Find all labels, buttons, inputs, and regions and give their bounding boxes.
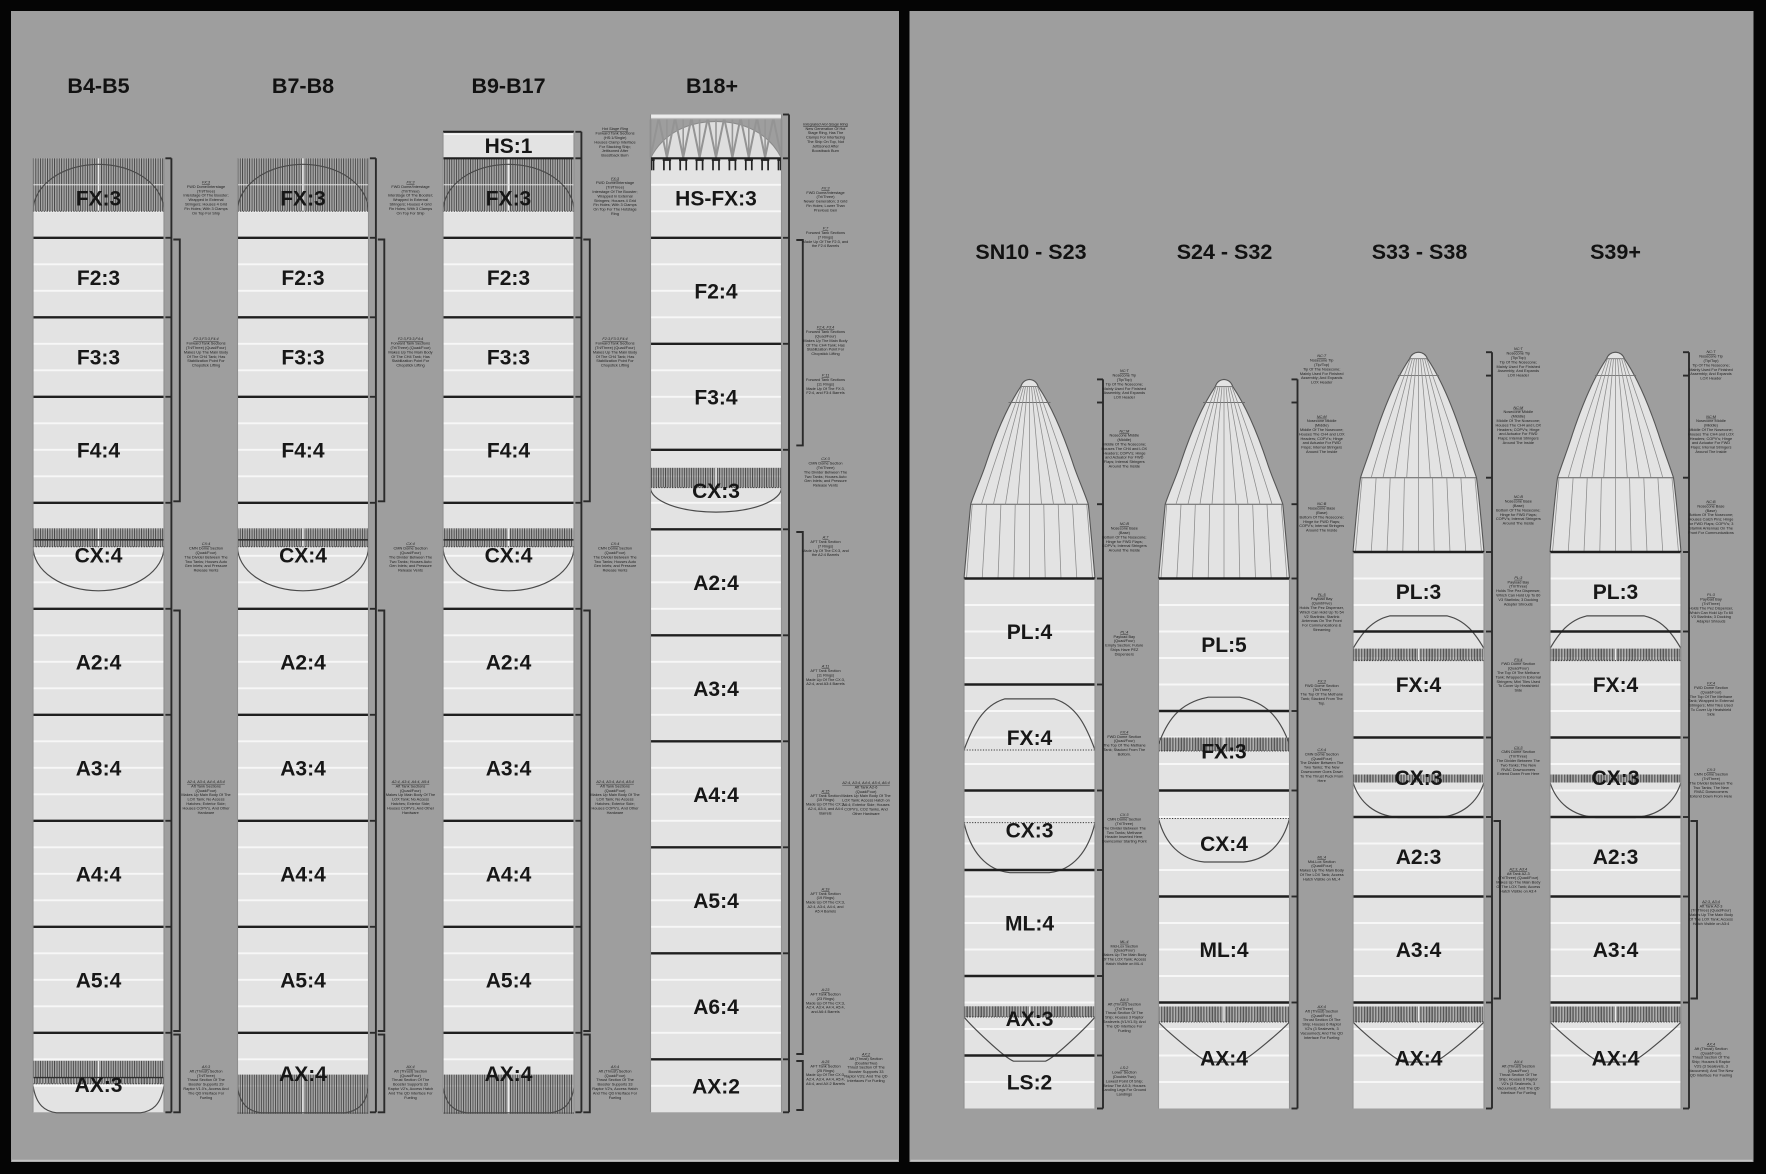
svg-text:CX:3: CX:3 xyxy=(1006,820,1054,843)
svg-text:AX:4Aft (Thrust) Section(Quad/: AX:4Aft (Thrust) Section(Quad/Four)Thrus… xyxy=(1689,1042,1734,1077)
svg-text:CX:4CMN Dome Section(Quad/Four: CX:4CMN Dome Section(Quad/Four)The Divid… xyxy=(1300,748,1343,783)
svg-text:A2:4: A2:4 xyxy=(76,651,122,674)
svg-text:FX:3: FX:3 xyxy=(280,188,326,211)
svg-text:F2:3,F3:3,F4:4Forward Tank Sec: F2:3,F3:3,F4:4Forward Tank Sections(Tri/… xyxy=(388,337,432,367)
svg-text:A:25AFT Tank Section(25 Rings): A:25AFT Tank Section(25 Rings)Made Up Of… xyxy=(806,1060,845,1086)
svg-text:CX:4CMN Dome Section(Quad/Four: CX:4CMN Dome Section(Quad/Four)The Divid… xyxy=(389,542,432,572)
svg-text:ML:4: ML:4 xyxy=(1200,939,1249,962)
svg-text:PL:3: PL:3 xyxy=(1396,581,1442,604)
svg-text:PL:5: PL:5 xyxy=(1201,634,1247,657)
svg-text:A6:4: A6:4 xyxy=(693,996,739,1019)
svg-text:AX:3: AX:3 xyxy=(1006,1008,1054,1031)
svg-text:F3:3: F3:3 xyxy=(77,347,120,370)
svg-text:AX:4: AX:4 xyxy=(1592,1048,1640,1071)
svg-text:F2:3: F2:3 xyxy=(281,267,324,290)
svg-text:A2:3: A2:3 xyxy=(1396,846,1442,869)
svg-text:FX:4FWD Dome Section(Quad/Four: FX:4FWD Dome Section(Quad/Four)The Top O… xyxy=(1688,682,1733,717)
svg-text:A3:4: A3:4 xyxy=(1396,939,1442,962)
svg-text:F4:4: F4:4 xyxy=(487,439,531,462)
svg-text:F4:4: F4:4 xyxy=(77,439,121,462)
svg-text:A2:4: A2:4 xyxy=(693,572,739,595)
svg-text:A5:4: A5:4 xyxy=(280,969,326,992)
svg-text:AX:4Aft (Thrust) Section(Quad/: AX:4Aft (Thrust) Section(Quad/Four)Thrus… xyxy=(592,1065,637,1100)
svg-text:A5:4: A5:4 xyxy=(693,890,739,913)
svg-text:CX:4: CX:4 xyxy=(1200,833,1248,856)
svg-text:PL:3: PL:3 xyxy=(1593,581,1639,604)
svg-text:FX:3: FX:3 xyxy=(486,188,532,211)
svg-text:S24 - S32: S24 - S32 xyxy=(1177,240,1273,264)
svg-text:CX:3CMN Dome Section(Tri/Three: CX:3CMN Dome Section(Tri/Three)The Divid… xyxy=(1689,768,1732,798)
svg-text:CX:3CMN Dome Section(Tri/Three: CX:3CMN Dome Section(Tri/Three)The Divid… xyxy=(804,457,847,487)
svg-text:FX:3FWD Dome/Interstage(Tri/Th: FX:3FWD Dome/Interstage(Tri/Three)Inters… xyxy=(183,180,228,215)
svg-text:B18+: B18+ xyxy=(686,74,738,98)
svg-text:CX:3: CX:3 xyxy=(1395,767,1443,790)
svg-text:PL:4: PL:4 xyxy=(1007,621,1053,644)
svg-text:AX:4Aft (Thrust) Section(Quad/: AX:4Aft (Thrust) Section(Quad/Four)Thrus… xyxy=(388,1065,433,1100)
svg-text:FX:3: FX:3 xyxy=(1201,741,1247,764)
svg-text:F2:3,F3:3,F4:4Forward Tank Sec: F2:3,F3:3,F4:4Forward Tank Sections(Tri/… xyxy=(593,337,637,367)
svg-text:FX:4: FX:4 xyxy=(1396,674,1442,697)
svg-text:A:23AFT Tank Section(23 Rings): A:23AFT Tank Section(23 Rings)Made Up Of… xyxy=(806,988,845,1014)
svg-text:LS:2: LS:2 xyxy=(1007,1072,1053,1095)
svg-text:ML:4: ML:4 xyxy=(1005,913,1054,936)
svg-text:F2:4, F3:4Forward Tank Section: F2:4, F3:4Forward Tank Sections(Quad/Fou… xyxy=(803,326,847,356)
svg-text:F3:4: F3:4 xyxy=(694,386,738,409)
svg-text:CX:3CMN Dome Section(Tri/Three: CX:3CMN Dome Section(Tri/Three)The Divid… xyxy=(1102,813,1148,843)
svg-text:AX:4Aft (Thrust) Section(Quad/: AX:4Aft (Thrust) Section(Quad/Four)Thrus… xyxy=(1497,1060,1540,1095)
svg-text:A5:4: A5:4 xyxy=(486,969,532,992)
svg-text:AX:4: AX:4 xyxy=(1200,1048,1248,1071)
svg-text:A3:4: A3:4 xyxy=(693,678,739,701)
svg-text:AX:4Aft (Thrust) Section(Quad/: AX:4Aft (Thrust) Section(Quad/Four)Thrus… xyxy=(1300,1005,1343,1040)
svg-text:A2:4: A2:4 xyxy=(486,651,532,674)
svg-text:A5:4: A5:4 xyxy=(76,969,122,992)
svg-text:FX:3: FX:3 xyxy=(76,188,122,211)
svg-text:AX:4: AX:4 xyxy=(1395,1048,1443,1071)
svg-text:F3:3: F3:3 xyxy=(487,347,530,370)
svg-text:A4:4: A4:4 xyxy=(280,863,326,886)
svg-text:A2:4: A2:4 xyxy=(280,651,326,674)
svg-text:AX:3: AX:3 xyxy=(75,1074,123,1097)
svg-text:CX:4CMN Dome Section(Quad/Four: CX:4CMN Dome Section(Quad/Four)The Divid… xyxy=(184,542,227,572)
svg-text:CX:3: CX:3 xyxy=(1592,767,1640,790)
svg-text:CX:3: CX:3 xyxy=(692,480,740,503)
svg-text:F2:3: F2:3 xyxy=(77,267,120,290)
svg-text:A4:4: A4:4 xyxy=(693,784,739,807)
svg-text:AX:2: AX:2 xyxy=(692,1075,740,1098)
svg-text:FX:3FWD Dome/Interstage(Tri/Th: FX:3FWD Dome/Interstage(Tri/Three)Inters… xyxy=(592,177,637,216)
svg-text:AX:3Aft (Thrust) Section(Tri/T: AX:3Aft (Thrust) Section(Tri/Three)Thrus… xyxy=(183,1065,228,1100)
svg-text:CX:4: CX:4 xyxy=(485,544,533,567)
svg-text:FX:3FWD Dome/Interstage(Tri/Th: FX:3FWD Dome/Interstage(Tri/Three)Inters… xyxy=(388,180,433,215)
svg-text:FX:4: FX:4 xyxy=(1007,727,1053,750)
svg-text:A3:4: A3:4 xyxy=(280,757,326,780)
svg-text:HS:1: HS:1 xyxy=(485,135,533,158)
svg-text:CX:4: CX:4 xyxy=(279,544,327,567)
svg-text:A4:4: A4:4 xyxy=(76,863,122,886)
svg-text:AX:4: AX:4 xyxy=(279,1063,327,1086)
svg-text:B9-B17: B9-B17 xyxy=(471,74,545,98)
svg-text:CX:4CMN Dome Section(Quad/Four: CX:4CMN Dome Section(Quad/Four)The Divid… xyxy=(593,542,636,572)
svg-text:F2:4: F2:4 xyxy=(694,280,738,303)
svg-text:F4:4: F4:4 xyxy=(281,439,325,462)
svg-text:AX:3Aft (Thrust) Section(Tri/T: AX:3Aft (Thrust) Section(Tri/Three)Thrus… xyxy=(1103,998,1146,1033)
svg-text:FX:4FWD Dome Section(Quad/Four: FX:4FWD Dome Section(Quad/Four)The Top O… xyxy=(1496,658,1541,693)
svg-text:F3:3: F3:3 xyxy=(281,347,324,370)
svg-text:SN10 - S23: SN10 - S23 xyxy=(975,240,1086,264)
svg-text:FX:4: FX:4 xyxy=(1593,674,1639,697)
svg-text:S33 - S38: S33 - S38 xyxy=(1372,240,1468,264)
svg-text:B7-B8: B7-B8 xyxy=(272,74,334,98)
svg-text:HS-FX:3: HS-FX:3 xyxy=(675,188,757,211)
svg-text:CX:3CMN Dome Section(Tri/Three: CX:3CMN Dome Section(Tri/Three)The Divid… xyxy=(1497,746,1540,776)
svg-text:F2:3: F2:3 xyxy=(487,267,530,290)
svg-text:B4-B5: B4-B5 xyxy=(67,74,129,98)
svg-text:AX:2Aft (Thrust) Section(Doubl: AX:2Aft (Thrust) Section(Double/Two)Thru… xyxy=(844,1052,887,1082)
svg-text:S39+: S39+ xyxy=(1590,240,1641,264)
svg-text:CX:4: CX:4 xyxy=(75,544,123,567)
svg-text:AX:4: AX:4 xyxy=(485,1063,533,1086)
svg-text:A3:4: A3:4 xyxy=(1593,939,1639,962)
svg-text:F2:3,F3:3,F4:4Forward Tank Sec: F2:3,F3:3,F4:4Forward Tank Sections(Tri/… xyxy=(184,337,228,367)
svg-text:A4:4: A4:4 xyxy=(486,863,532,886)
svg-text:A3:4: A3:4 xyxy=(486,757,532,780)
svg-text:A3:4: A3:4 xyxy=(76,757,122,780)
svg-text:A2:3: A2:3 xyxy=(1593,846,1639,869)
